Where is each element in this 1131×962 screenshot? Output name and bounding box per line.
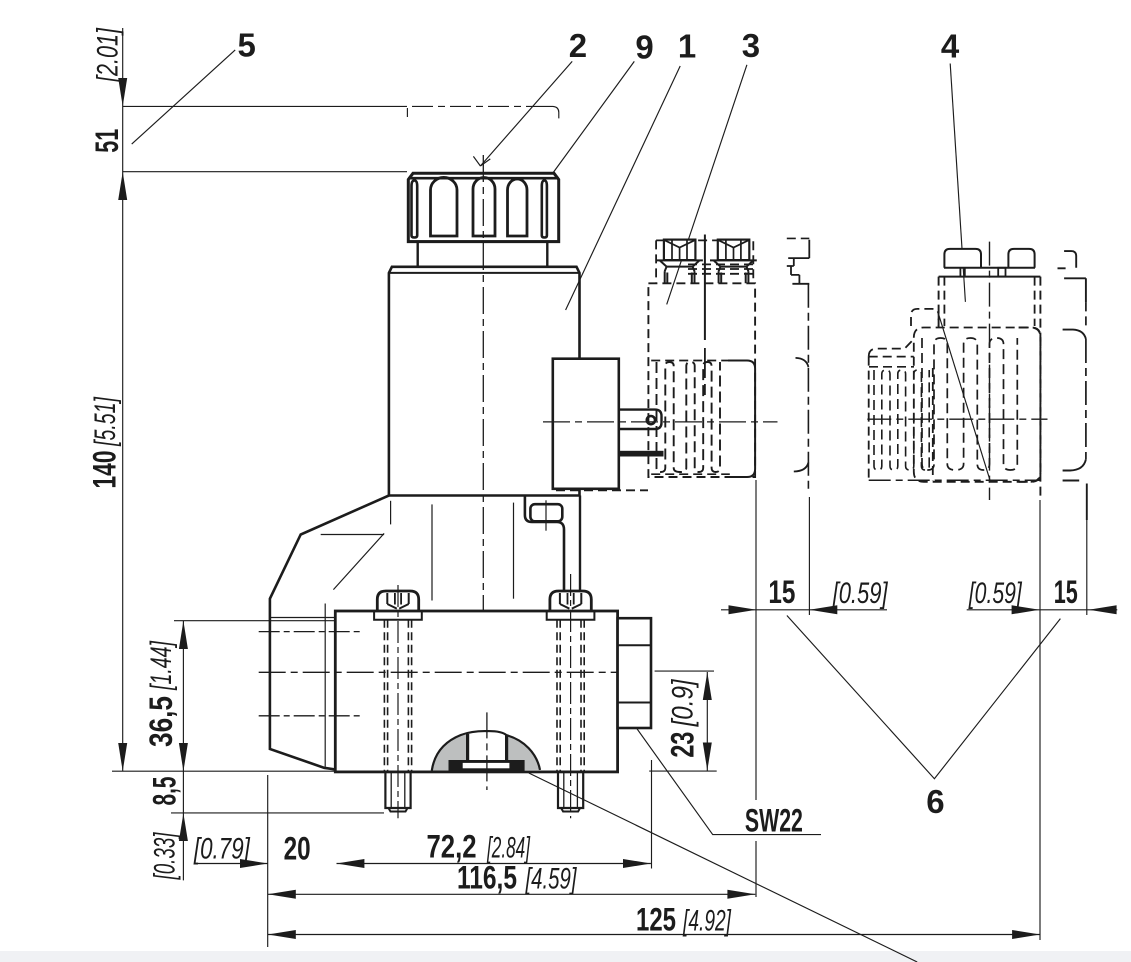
svg-text:[0.79]: [0.79] xyxy=(193,833,250,866)
svg-text:SW22: SW22 xyxy=(745,803,803,839)
svg-text:8,5: 8,5 xyxy=(147,777,183,806)
svg-text:125: 125 xyxy=(636,902,676,938)
svg-text:116,5: 116,5 xyxy=(457,860,517,896)
svg-text:3: 3 xyxy=(742,27,760,64)
svg-text:[1.44]: [1.44] xyxy=(145,641,178,691)
svg-text:140: 140 xyxy=(87,451,123,489)
svg-text:[0.59]: [0.59] xyxy=(832,577,888,610)
svg-text:4: 4 xyxy=(941,28,960,65)
svg-text:5: 5 xyxy=(238,27,256,64)
svg-text:[5.51]: [5.51] xyxy=(89,397,122,447)
svg-text:[0.9]: [0.9] xyxy=(667,679,700,727)
svg-text:[4.59]: [4.59] xyxy=(525,863,577,896)
svg-text:36,5: 36,5 xyxy=(143,696,179,747)
svg-text:[4.92]: [4.92] xyxy=(682,905,731,938)
svg-text:2: 2 xyxy=(569,27,587,64)
svg-text:6: 6 xyxy=(926,783,944,820)
svg-text:20: 20 xyxy=(284,831,311,867)
svg-text:23: 23 xyxy=(665,732,701,758)
svg-text:15: 15 xyxy=(1054,574,1078,610)
svg-text:51: 51 xyxy=(89,129,125,153)
svg-text:[0.33]: [0.33] xyxy=(149,832,182,880)
svg-text:[2.01]: [2.01] xyxy=(92,28,125,83)
svg-text:15: 15 xyxy=(768,574,795,610)
svg-text:9: 9 xyxy=(635,29,653,66)
svg-text:1: 1 xyxy=(678,28,696,65)
svg-text:[0.59]: [0.59] xyxy=(968,577,1022,610)
